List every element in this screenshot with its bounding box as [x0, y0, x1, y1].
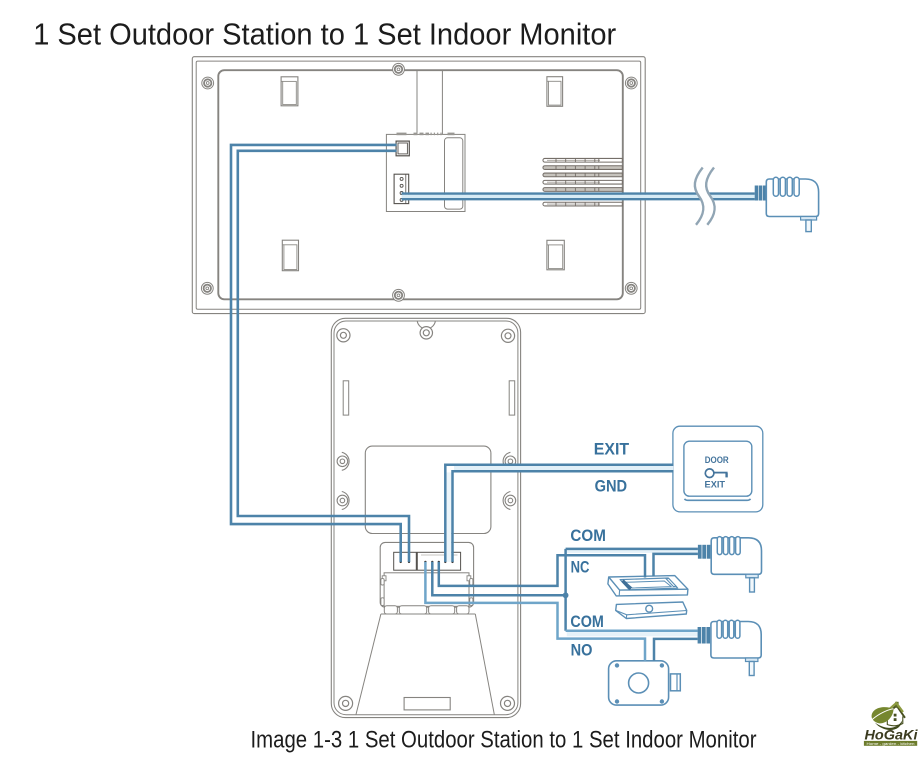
- svg-text:1 Set Outdoor Station to 1 Set: 1 Set Outdoor Station to 1 Set Indoor Mo…: [33, 16, 616, 51]
- svg-text:COM: COM: [570, 612, 604, 631]
- svg-text:NO: NO: [571, 641, 593, 660]
- svg-text:GND: GND: [595, 476, 628, 495]
- svg-text:COM: COM: [570, 526, 606, 545]
- svg-text:EXIT: EXIT: [705, 479, 726, 490]
- svg-text:Home - garden - kitchen: Home - garden - kitchen: [867, 742, 915, 746]
- svg-text:EXIT: EXIT: [594, 439, 630, 458]
- svg-text:HoGaKi: HoGaKi: [865, 727, 918, 742]
- svg-text:DOOR: DOOR: [705, 455, 729, 466]
- svg-text:Image 1-3 1 Set Outdoor Statio: Image 1-3 1 Set Outdoor Station to 1 Set…: [251, 727, 757, 754]
- svg-text:NC: NC: [571, 558, 590, 577]
